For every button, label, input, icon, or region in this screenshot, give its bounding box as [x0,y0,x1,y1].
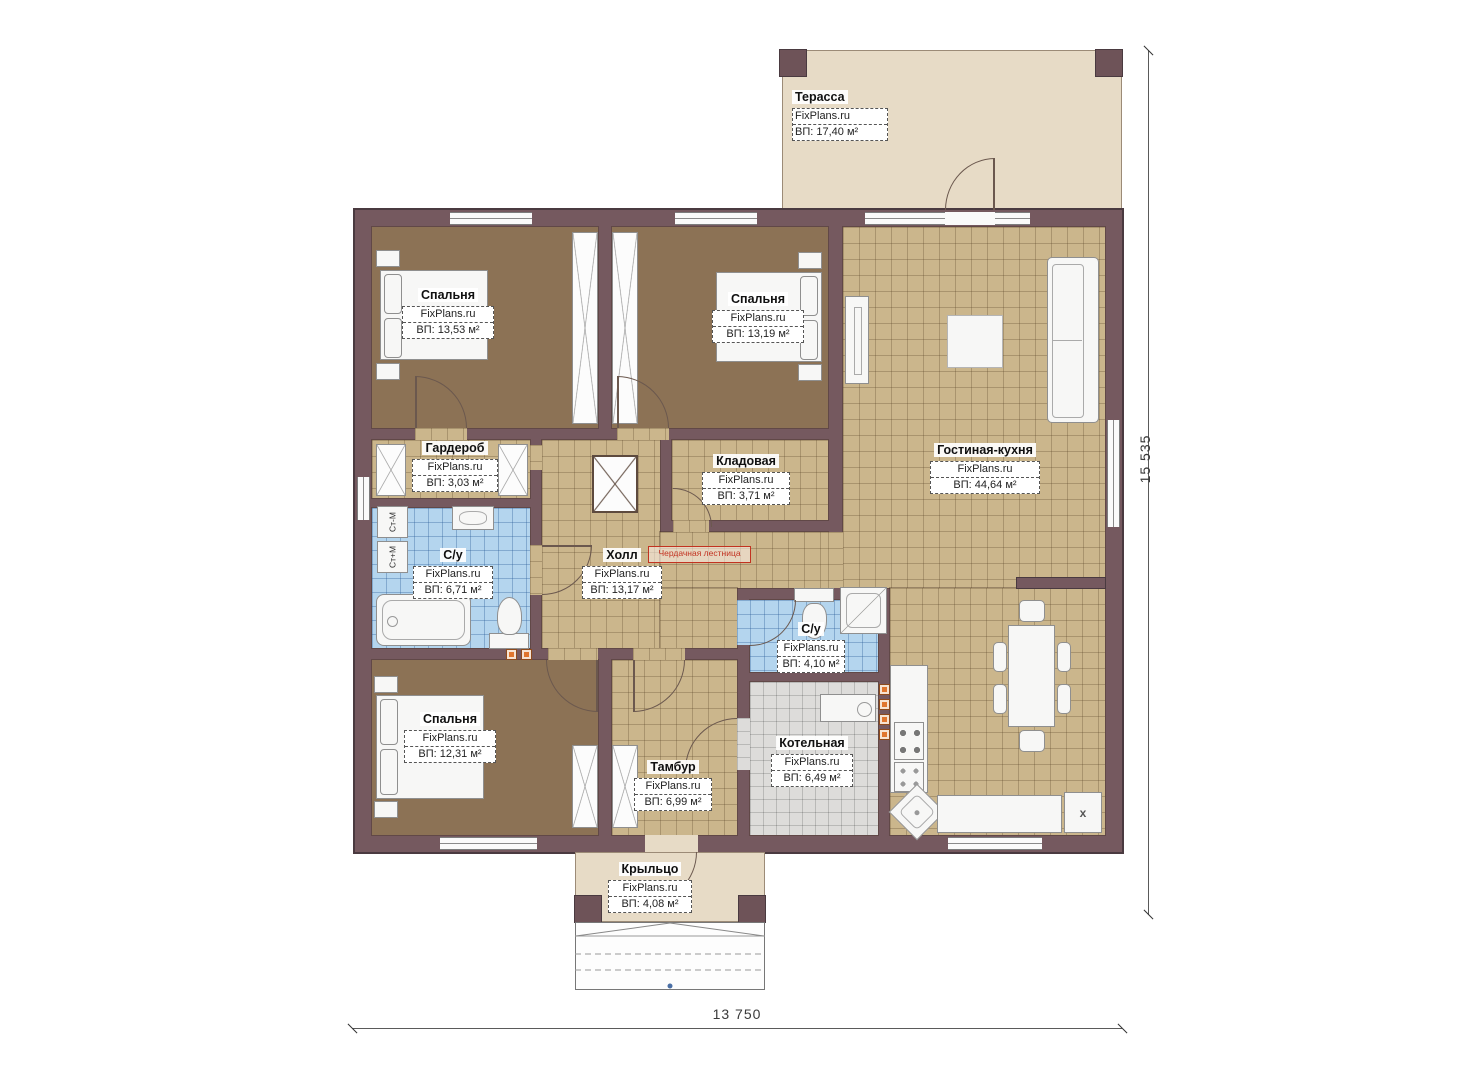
room-label-bathroom-2: С/у FixPlans.ru ВП: 4,10 м² [777,620,845,673]
room-label-terrace: Терасса FixPlans.ru ВП: 17,40 м² [792,88,888,141]
wardrobe-cabinet [572,232,598,424]
wardrobe-cabinet [376,444,406,496]
brand: FixPlans.ru [931,462,1039,478]
brand: FixPlans.ru [793,109,887,125]
terrace-post [1096,50,1122,76]
dimension-line-bottom [352,1028,1122,1029]
nightstand [376,363,400,380]
chair [993,684,1007,714]
room-name: Кладовая [713,454,779,468]
toilet [489,633,529,649]
window [675,212,757,225]
radiator-marker [879,699,890,710]
room-area: ВП: 13,17 м² [583,583,661,598]
radiator-marker [879,729,890,740]
brand: FixPlans.ru [414,567,492,583]
brand: FixPlans.ru [405,731,495,747]
room-area: ВП: 3,03 м² [413,476,497,491]
pillow [380,699,398,745]
brand: FixPlans.ru [778,641,844,657]
chair [993,642,1007,672]
porch-post [575,896,601,922]
room-label-wardrobe: Гардероб FixPlans.ru ВП: 3,03 м² [412,439,498,492]
window [450,212,532,225]
room-label-storage: Кладовая FixPlans.ru ВП: 3,71 м² [702,452,790,505]
room-area: ВП: 4,10 м² [778,657,844,672]
nightstand [374,676,398,693]
room-name: Котельная [776,736,847,750]
radiator-marker [506,649,517,660]
sink [452,506,494,530]
brand: FixPlans.ru [413,460,497,476]
nightstand [798,364,822,381]
tv-stand [845,296,869,384]
shower [840,587,887,634]
toilet-bowl [497,597,522,635]
terrace-door-opening [945,212,995,225]
brand: FixPlans.ru [583,567,661,583]
attic-ladder-annotation: Чердачная лестница [648,546,751,563]
chair [1019,600,1045,622]
radiator-marker [879,684,890,695]
room-label-bedroom-3: Спальня FixPlans.ru ВП: 12,31 м² [404,710,496,763]
dimension-value-bottom: 13 750 [697,1006,777,1024]
door-leaf [415,376,417,428]
room-area: ВП: 6,49 м² [772,771,852,786]
room-area: ВП: 3,71 м² [703,489,789,504]
window [948,837,1042,850]
nightstand [798,252,822,269]
room-name: Тамбур [647,760,698,774]
boiler-equipment [820,694,876,722]
door-gap [737,718,750,770]
room-name: С/у [798,622,823,636]
chair [1057,642,1071,672]
wardrobe-cabinet [498,444,528,496]
room-label-boiler: Котельная FixPlans.ru ВП: 6,49 м² [771,734,853,787]
door-gap [530,445,542,470]
room-label-porch: Крыльцо FixPlans.ru ВП: 4,08 м² [608,860,692,913]
room-area: ВП: 13,19 м² [713,327,803,342]
room-label-vestibule: Тамбур FixPlans.ru ВП: 6,99 м² [634,758,712,811]
room-area: ВП: 6,71 м² [414,583,492,598]
chair [1057,684,1071,714]
dining-table [1008,625,1055,727]
brand: FixPlans.ru [609,881,691,897]
room-name: Крыльцо [619,862,682,876]
radiator-marker [879,714,890,725]
room-label-living-kitchen: Гостиная-кухня FixPlans.ru ВП: 44,64 м² [930,441,1040,494]
room-label-bathroom-1: С/у FixPlans.ru ВП: 6,71 м² [413,546,493,599]
brand: FixPlans.ru [713,311,803,327]
room-name: Холл [603,548,640,562]
pillow [384,274,402,314]
room-label-bedroom-1: Спальня FixPlans.ru ВП: 13,53 м² [402,286,494,339]
toilet [794,588,834,602]
bathtub [376,594,471,646]
window [995,212,1030,225]
chair [1019,730,1045,752]
washing-machine: Ст-М [377,506,408,538]
brand: FixPlans.ru [703,473,789,489]
nightstand [374,801,398,818]
room-area: ВП: 44,64 м² [931,478,1039,493]
room-area: ВП: 17,40 м² [793,125,887,140]
brand: FixPlans.ru [772,755,852,771]
door-leaf [596,660,598,712]
attic-hatch [592,455,638,513]
fridge: x [1064,792,1102,833]
kitchen-half-wall [1017,578,1105,588]
window [440,837,537,850]
house-body: Ст-М Ст+М [355,210,1122,852]
room-name: С/у [440,548,465,562]
hall-opening [828,532,843,588]
nightstand [376,250,400,267]
terrace-door-leaf [993,158,995,210]
room-area: ВП: 4,08 м² [609,897,691,912]
door-gap [737,600,750,645]
coffee-table [947,315,1003,368]
radiator-marker [521,649,532,660]
floor-plan: Терасса FixPlans.ru ВП: 17,40 м² [0,0,1474,1080]
porch-steps [575,922,765,990]
wardrobe-cabinet [572,745,598,828]
kitchen-counter [937,795,1062,833]
door-gap [548,648,598,660]
terrace-post [780,50,806,76]
dimension-value-right: 15 535 [1137,423,1155,495]
pillow [380,749,398,795]
door-leaf [617,376,619,428]
fridge-mark: x [1080,806,1087,820]
brand: FixPlans.ru [403,307,493,323]
pillow [384,318,402,358]
sofa [1047,257,1099,423]
door-gap [530,545,542,595]
hall-floor [660,588,737,648]
stove [894,722,924,760]
room-name: Спальня [418,288,478,302]
room-name: Гостиная-кухня [934,443,1036,457]
window [1107,420,1120,527]
entrance-door-gap [645,835,698,852]
room-name: Гардероб [422,441,487,455]
window [865,212,945,225]
room-label-bedroom-2: Спальня FixPlans.ru ВП: 13,19 м² [712,290,804,343]
room-area: ВП: 6,99 м² [635,795,711,810]
window [357,477,370,520]
washing-machine-label: Ст+М [378,542,407,572]
brand: FixPlans.ru [635,779,711,795]
washing-machine-label: Ст-М [378,507,407,537]
room-area: ВП: 13,53 м² [403,323,493,338]
room-name: Спальня [420,712,480,726]
washing-machine: Ст+М [377,541,408,573]
door-gap [633,648,685,660]
door-gap [617,428,669,440]
porch-post [739,896,765,922]
room-name: Спальня [728,292,788,306]
room-area: ВП: 12,31 м² [405,747,495,762]
door-leaf [633,660,635,712]
room-name: Терасса [792,90,848,104]
